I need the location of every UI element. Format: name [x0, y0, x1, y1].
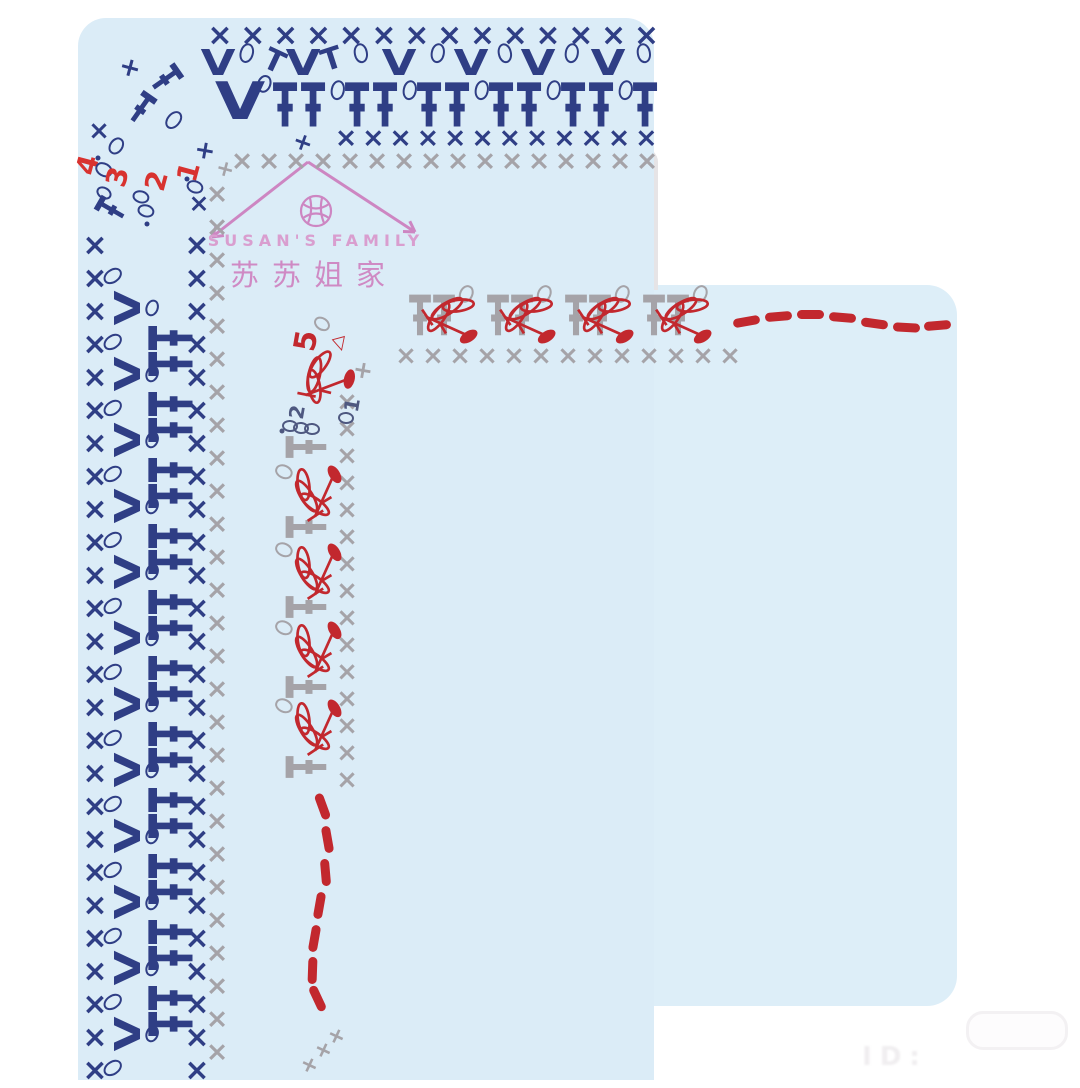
stitch-dc-glyph: Ŧ: [273, 76, 297, 137]
stitch-x-glyph: ×: [82, 891, 107, 921]
repeat-dash-mark: [828, 311, 856, 322]
stitch-x-glyph: ×: [206, 280, 229, 307]
stitch-x-glyph: ×: [82, 1023, 107, 1053]
stitch-x-glyph: ×: [206, 1006, 229, 1033]
stitch-x-glyph: ×: [206, 940, 229, 967]
brand-text-cn: 苏苏姐家: [196, 252, 432, 294]
stitch-x-glyph: ×: [555, 148, 578, 175]
stitch-x-glyph: ×: [206, 478, 229, 505]
stitch-x-glyph: ×: [501, 148, 524, 175]
stitch-x-glyph: ×: [88, 118, 110, 144]
cluster-stitch-symbol: [287, 542, 349, 604]
cluster-stitch-symbol: [287, 620, 349, 682]
stitch-v-glyph: V: [286, 46, 321, 82]
stitch-x-glyph: ×: [206, 445, 229, 472]
stitch-x-glyph: ×: [395, 343, 417, 369]
repeat-dash-mark: [764, 310, 792, 321]
stitch-x-glyph: ×: [206, 412, 229, 439]
stitch-x-glyph: ×: [206, 907, 229, 934]
repeat-dash-mark: [319, 858, 330, 886]
stitch-x-glyph: ×: [206, 610, 229, 637]
stitch-x-glyph: ×: [206, 973, 229, 1000]
stitch-x-glyph: ×: [206, 808, 229, 835]
stitch-x-glyph: ×: [82, 759, 107, 789]
cluster-stitch-symbol: [287, 464, 349, 526]
stitch-x-glyph: ×: [206, 841, 229, 868]
stitch-x-glyph: ×: [206, 775, 229, 802]
stitch-x-glyph: ×: [528, 148, 551, 175]
brand-text-en: SUSAN'S FAMILY: [198, 231, 434, 250]
stitch-x-glyph: ×: [719, 343, 741, 369]
stitch-x-glyph: ×: [206, 247, 229, 274]
stitch-x-glyph: ×: [258, 148, 281, 175]
stitch-x-glyph: ×: [447, 148, 470, 175]
stitch-dot-glyph: [185, 177, 190, 182]
stitch-dot-glyph: [145, 222, 150, 227]
stitch-x-glyph: ×: [82, 231, 107, 261]
stitch-x-glyph: ×: [206, 346, 229, 373]
repeat-dash-mark: [797, 310, 824, 319]
stitch-x-glyph: ×: [82, 363, 107, 393]
stitch-x-glyph: ×: [206, 214, 229, 241]
repeat-dash-mark: [892, 322, 919, 332]
stitch-x-glyph: ×: [82, 561, 107, 591]
stitch-x-glyph: ×: [339, 148, 362, 175]
stitch-v-glyph: V: [111, 291, 147, 326]
cluster-stitch-symbol: [573, 289, 635, 351]
stitch-x-glyph: ×: [82, 495, 107, 525]
stitch-v-glyph: V: [591, 46, 626, 82]
stitch-x-glyph: ×: [82, 627, 107, 657]
stitch-x-glyph: ×: [582, 148, 605, 175]
stitch-v-glyph: V: [521, 46, 556, 82]
stitch-v-glyph: V: [382, 46, 417, 82]
stitch-x-glyph: ×: [189, 191, 210, 216]
stitch-x-glyph: ×: [206, 544, 229, 571]
stitch-x-glyph: ×: [366, 148, 389, 175]
stitch-dot-glyph: [280, 429, 285, 434]
stitch-x-glyph: ×: [312, 148, 335, 175]
stitch-v-glyph: V: [454, 46, 489, 82]
stitch-x-glyph: ×: [82, 825, 107, 855]
repeat-dash-mark: [923, 319, 951, 330]
stitch-x-glyph: ×: [336, 767, 358, 793]
cluster-stitch-symbol: [495, 289, 557, 351]
repeat-dash-mark: [307, 956, 317, 983]
stitch-x-glyph: ×: [206, 742, 229, 769]
stitch-x-glyph: ×: [206, 379, 229, 406]
stitch-x-glyph: ×: [206, 313, 229, 340]
stitch-dot-glyph: [96, 156, 101, 161]
yarn-ball-icon: [296, 191, 336, 231]
stitch-x-glyph: ×: [206, 709, 229, 736]
stitch-x-glyph: ×: [474, 148, 497, 175]
cluster-stitch-symbol: [287, 698, 349, 760]
crochet-chart-diagram: SUSAN'S FAMILY 苏苏姐家 ID: ××××××××××××××ŦŦ…: [0, 0, 1080, 1080]
stitch-x-glyph: ×: [393, 148, 416, 175]
stitch-x-glyph: ×: [636, 148, 659, 175]
stitch-x-glyph: ×: [82, 693, 107, 723]
stitch-plus-glyph: +: [193, 136, 218, 164]
stitch-x-glyph: ×: [206, 643, 229, 670]
stitch-x-glyph: ×: [206, 874, 229, 901]
stitch-x-glyph: ×: [206, 676, 229, 703]
user-id-watermark: ID:: [730, 1042, 1060, 1074]
cluster-stitch-symbol: [651, 289, 713, 351]
stitch-x-glyph: ×: [82, 297, 107, 327]
stitch-x-glyph: ×: [82, 957, 107, 987]
stitch-x-glyph: ×: [206, 577, 229, 604]
stitch-dc-glyph: Ŧ: [279, 436, 334, 458]
stitch-x-glyph: ×: [206, 1039, 229, 1066]
stitch-x-glyph: ×: [609, 148, 632, 175]
stitch-x-glyph: ×: [420, 148, 443, 175]
stitch-x-glyph: ×: [206, 511, 229, 538]
stitch-x-glyph: ×: [82, 429, 107, 459]
cluster-stitch-symbol: [417, 289, 479, 351]
